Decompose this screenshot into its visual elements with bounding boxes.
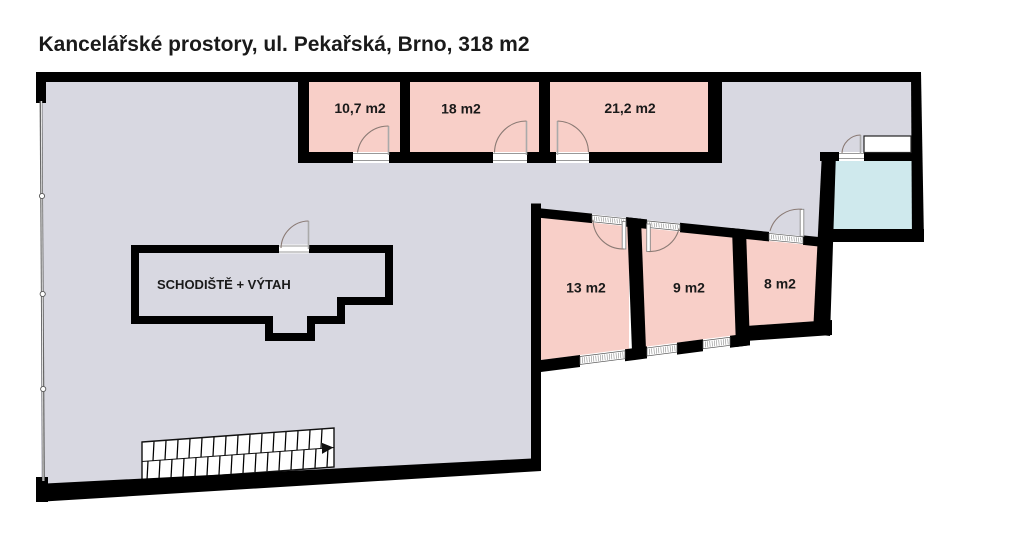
- svg-text:18 m2: 18 m2: [441, 101, 481, 117]
- svg-text:10,7 m2: 10,7 m2: [334, 100, 386, 116]
- svg-text:8 m2: 8 m2: [764, 276, 796, 292]
- svg-text:SCHODIŠTĚ + VÝTAH: SCHODIŠTĚ + VÝTAH: [157, 277, 291, 292]
- svg-text:Kancelářské prostory, ul. Peka: Kancelářské prostory, ul. Pekařská, Brno…: [39, 33, 530, 56]
- svg-text:9 m2: 9 m2: [673, 280, 705, 296]
- svg-text:13 m2: 13 m2: [566, 280, 606, 296]
- svg-text:21,2 m2: 21,2 m2: [604, 100, 656, 116]
